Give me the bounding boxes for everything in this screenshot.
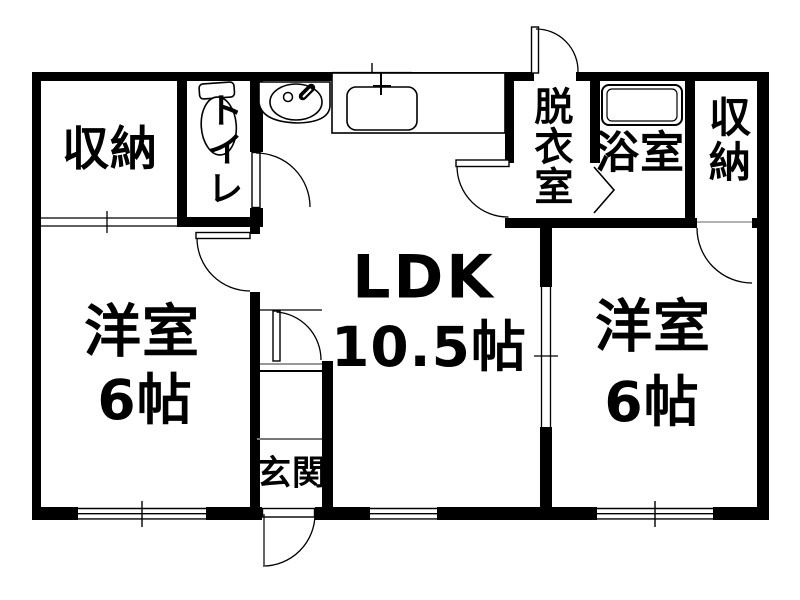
front-door bbox=[262, 507, 315, 566]
wall-toilet-east-lower bbox=[250, 208, 263, 227]
dressing-room-door bbox=[456, 160, 509, 217]
bathtub-icon bbox=[602, 85, 682, 125]
bedroom-left-door bbox=[196, 233, 250, 292]
washbasin-icon bbox=[259, 82, 330, 123]
room-label-western-left: 洋室 bbox=[84, 303, 200, 361]
door-leaf bbox=[196, 233, 250, 239]
door-leaf bbox=[263, 509, 315, 518]
room-area-western-right: 6帖 bbox=[604, 374, 699, 430]
bottom-window-left bbox=[78, 501, 206, 527]
bottom-window-right bbox=[597, 501, 713, 527]
room-label-closet-top-right: 収納 bbox=[705, 95, 748, 185]
door-swing-arc bbox=[263, 514, 315, 566]
room-label-dressing-room: 脱衣室 bbox=[530, 86, 570, 206]
door-swing-arc bbox=[277, 312, 322, 360]
wall-dressing-west bbox=[505, 72, 514, 163]
room-label-genkan: 玄関 bbox=[257, 457, 327, 492]
door-leaf bbox=[456, 160, 509, 167]
door-swing-arc bbox=[256, 153, 310, 207]
toilet-door bbox=[252, 153, 310, 208]
door-swing-arc bbox=[697, 228, 752, 283]
wall-wet-area-bottom-left bbox=[505, 218, 697, 228]
room-area-ldk: 10.5帖 bbox=[331, 319, 527, 375]
wall-right bbox=[757, 72, 769, 520]
room-label-western-right: 洋室 bbox=[595, 298, 711, 356]
kitchen-sink-icon bbox=[332, 72, 505, 133]
genkan-inner-door bbox=[260, 310, 322, 361]
door-leaf bbox=[252, 153, 260, 208]
closet-right-door bbox=[697, 222, 752, 283]
room-area-western-left: 6帖 bbox=[97, 372, 192, 428]
wall-wet-area-bottom-right bbox=[752, 218, 769, 228]
room-label-closet-top-left: 収納 bbox=[62, 126, 158, 174]
bathtub-inner bbox=[607, 89, 677, 121]
washbasin-faucet bbox=[284, 93, 293, 102]
genkan-threshold bbox=[257, 364, 322, 439]
wall-ldk-bedroomR-upper bbox=[540, 227, 552, 287]
wall-left bbox=[32, 72, 41, 520]
wall-bedroomL-east-upper bbox=[250, 227, 260, 234]
door-swing-arc bbox=[536, 29, 578, 72]
door-swing-arc bbox=[197, 238, 250, 291]
closet-left-sliding-door bbox=[41, 211, 177, 233]
bottom-window-ldk bbox=[370, 507, 437, 521]
room-label-bathroom: 浴室 bbox=[595, 132, 685, 177]
wall-ldk-bedroomR-lower bbox=[540, 427, 552, 508]
door-swing-arc bbox=[457, 167, 509, 218]
door-leaf bbox=[273, 311, 280, 361]
ldk-bedroom-sliding-door bbox=[534, 287, 558, 427]
room-label-toilet: トイレ bbox=[203, 92, 240, 209]
wall-closet-toilet bbox=[177, 80, 187, 218]
door-leaf bbox=[532, 27, 539, 73]
back-door bbox=[532, 27, 579, 82]
room-label-ldk: LDK bbox=[352, 247, 496, 308]
floorplan: 収納 トイレ LDK 10.5帖 脱衣室 浴室 収納 洋室 6帖 洋室 6帖 玄… bbox=[0, 0, 800, 600]
wall-bath-closet bbox=[685, 80, 695, 218]
